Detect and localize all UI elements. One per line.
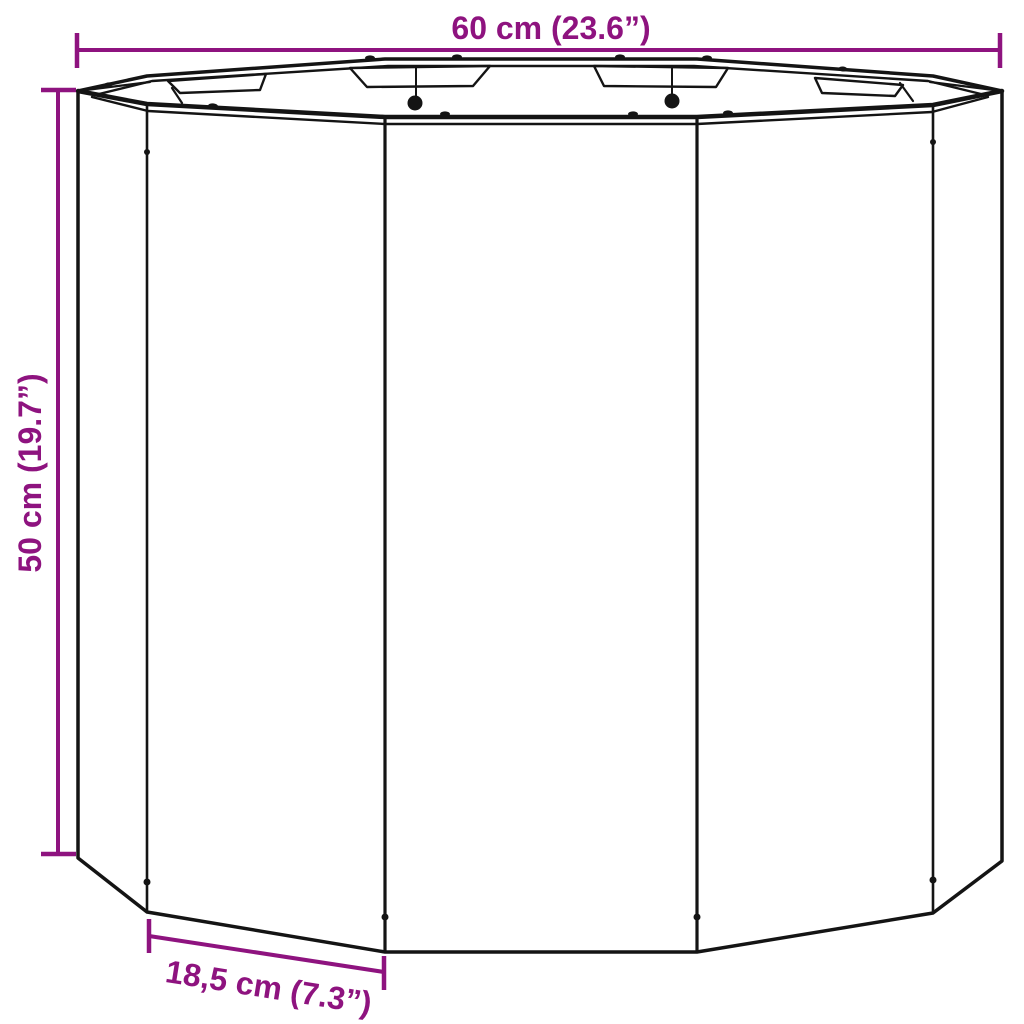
- rim-facet-right: [815, 78, 903, 96]
- panel-width-dimension: 18,5 cm (7.3”): [149, 919, 384, 1021]
- seam-fastener-dots: [144, 139, 937, 921]
- dimension-annotations: 60 cm (23.6”) 50 cm (19.7”) 18,5 cm (7.3…: [12, 10, 1000, 1021]
- height-dimension: 50 cm (19.7”): [12, 90, 76, 854]
- planter-line-art: [78, 54, 1002, 952]
- rim-facet-center-right: [594, 66, 728, 87]
- rim-facet-center-left: [350, 66, 490, 87]
- width-dimension-label: 60 cm (23.6”): [451, 10, 650, 46]
- planter-silhouette: [78, 59, 1002, 952]
- panel-width-dimension-label: 18,5 cm (7.3”): [163, 953, 374, 1021]
- product-dimension-diagram: 60 cm (23.6”) 50 cm (19.7”) 18,5 cm (7.3…: [0, 0, 1024, 1024]
- rim-facet-left: [168, 74, 266, 93]
- planter-diagram-svg: 60 cm (23.6”) 50 cm (19.7”) 18,5 cm (7.3…: [0, 0, 1024, 1024]
- height-dimension-label: 50 cm (19.7”): [12, 373, 48, 572]
